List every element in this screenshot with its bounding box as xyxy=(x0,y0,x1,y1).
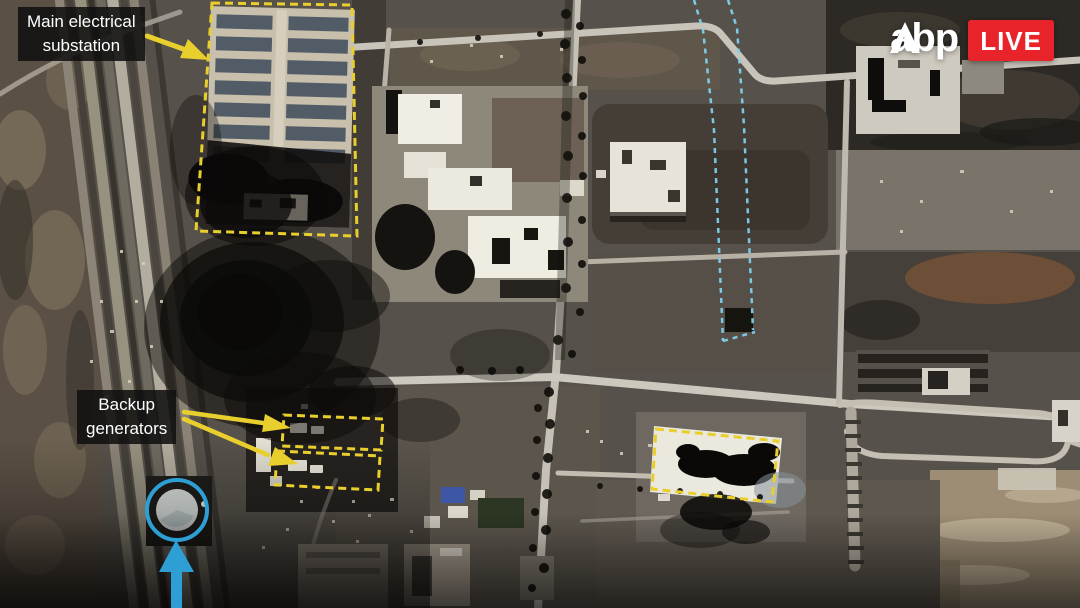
brand-text: abp xyxy=(890,18,958,58)
generators-callout-line2: generators xyxy=(86,417,167,441)
water-tank-circle-marker xyxy=(147,480,207,540)
water-tank-arrow-icon xyxy=(159,540,194,608)
substation-highlight-box xyxy=(196,3,357,236)
substation-callout-line2: substation xyxy=(27,34,136,58)
substation-callout-line1: Main electrical xyxy=(27,10,136,34)
substation-arrow-icon xyxy=(147,36,209,60)
generators-callout-line1: Backup xyxy=(86,393,167,417)
generators-highlight-box-1 xyxy=(282,415,383,450)
annotation-overlay xyxy=(0,0,1080,608)
live-badge: LIVE xyxy=(968,20,1054,61)
generators-arrow-icon-1 xyxy=(184,412,291,432)
generators-highlight-box-2 xyxy=(275,451,380,490)
satellite-image-frame: Main electrical substation Backup genera… xyxy=(0,0,1080,608)
generators-callout: Backup generators xyxy=(77,390,176,444)
damaged-building-highlight-box xyxy=(652,429,778,502)
channel-watermark: abp LIVE xyxy=(890,20,1054,61)
buried-route-dashes xyxy=(694,0,755,341)
substation-callout: Main electrical substation xyxy=(18,7,145,61)
